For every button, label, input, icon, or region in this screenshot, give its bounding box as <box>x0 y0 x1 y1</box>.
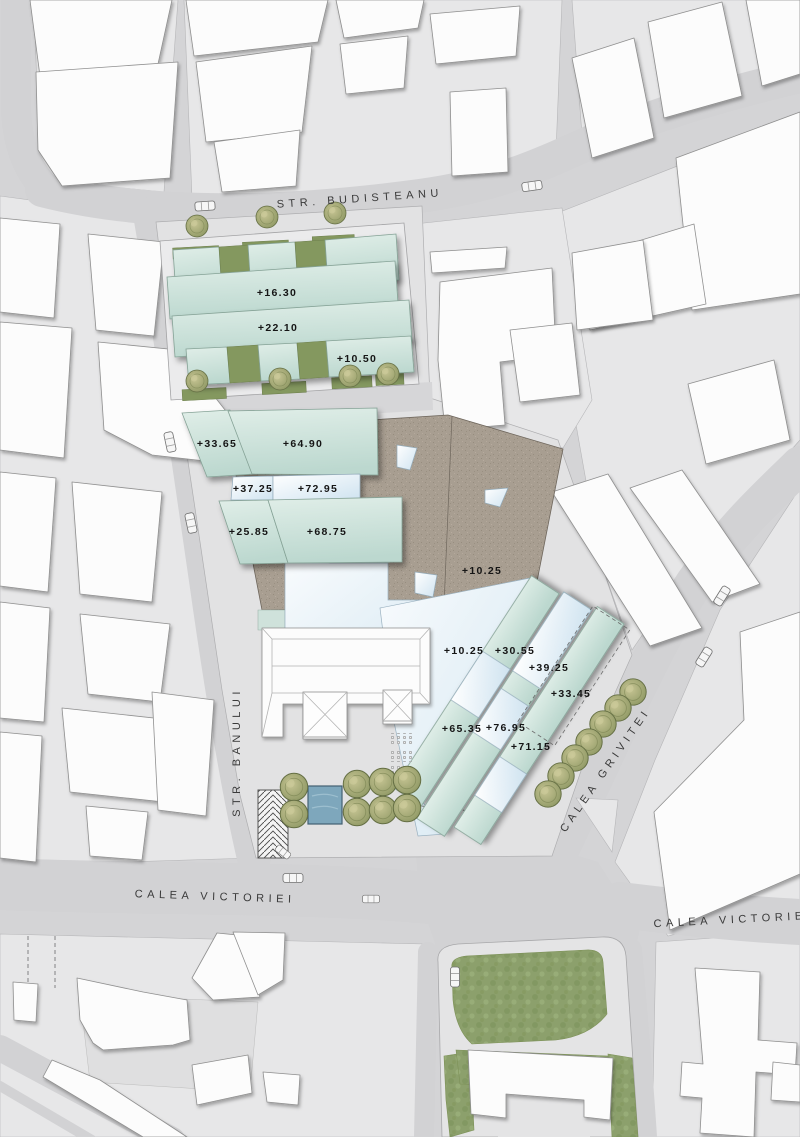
elevation-label: +37.25 <box>233 483 273 495</box>
tree <box>339 365 361 387</box>
tree <box>343 798 371 826</box>
elevation-label: +33.65 <box>197 438 237 450</box>
tree <box>280 773 308 801</box>
tree <box>280 800 308 828</box>
tree <box>256 206 278 228</box>
existing-buildings-top-left <box>30 0 178 186</box>
elevation-label: +10.25 <box>462 565 502 577</box>
building <box>0 322 72 458</box>
tree <box>269 368 291 390</box>
tree <box>186 215 208 237</box>
tree <box>393 794 421 822</box>
ramp-hatched <box>258 790 273 858</box>
victoriei-island <box>438 937 638 1137</box>
elevation-label: +72.95 <box>298 483 338 495</box>
lane-island-west <box>424 952 428 1137</box>
street-label-banului: STR. BANULUI <box>231 687 243 817</box>
building <box>572 240 653 330</box>
building <box>263 1072 300 1105</box>
building <box>771 1062 800 1102</box>
pool <box>308 786 342 824</box>
site-plan-canvas: +16.30 +22.10 +10.50 +33.65 +64.90 +37.2… <box>0 0 800 1137</box>
building <box>0 218 60 318</box>
skylight <box>415 572 437 597</box>
car <box>195 201 216 211</box>
elevation-label: +64.90 <box>283 438 323 450</box>
building <box>80 614 170 702</box>
building <box>340 36 408 94</box>
terrace-seating-dots <box>390 749 415 762</box>
building <box>510 323 580 402</box>
tree <box>186 370 208 392</box>
tree <box>369 796 397 824</box>
building <box>86 806 148 860</box>
building <box>88 234 164 336</box>
tree <box>377 363 399 385</box>
building <box>13 982 38 1022</box>
elevation-label: +76.95 <box>486 722 526 734</box>
car <box>363 895 380 903</box>
tree <box>393 766 421 794</box>
tree <box>369 768 397 796</box>
elevation-label: +30.55 <box>495 645 535 657</box>
building <box>36 62 178 186</box>
building <box>0 602 50 722</box>
elevation-label: +25.85 <box>229 526 269 538</box>
elevation-label: +22.10 <box>258 322 298 334</box>
building <box>72 482 162 602</box>
elevation-label: +10.50 <box>337 353 377 365</box>
building <box>0 732 42 862</box>
building <box>430 6 520 64</box>
tree <box>343 770 371 798</box>
building <box>152 692 214 816</box>
elevation-label: +16.30 <box>257 287 297 299</box>
elevation-label: +68.75 <box>307 526 347 538</box>
building <box>450 88 508 176</box>
tree <box>535 781 561 807</box>
car <box>283 874 303 883</box>
elevation-label: +33.45 <box>551 688 591 700</box>
elevation-label: +10.25 <box>444 645 484 657</box>
car <box>451 967 460 987</box>
elevation-label: +39.25 <box>529 662 569 674</box>
teal-strip <box>258 610 285 630</box>
elevation-label: +65.35 <box>442 723 482 735</box>
building <box>0 472 56 592</box>
lawn <box>452 950 607 1044</box>
terrace-seating-dots <box>390 733 415 746</box>
building <box>196 46 312 142</box>
elevation-label: +71.15 <box>511 741 551 753</box>
